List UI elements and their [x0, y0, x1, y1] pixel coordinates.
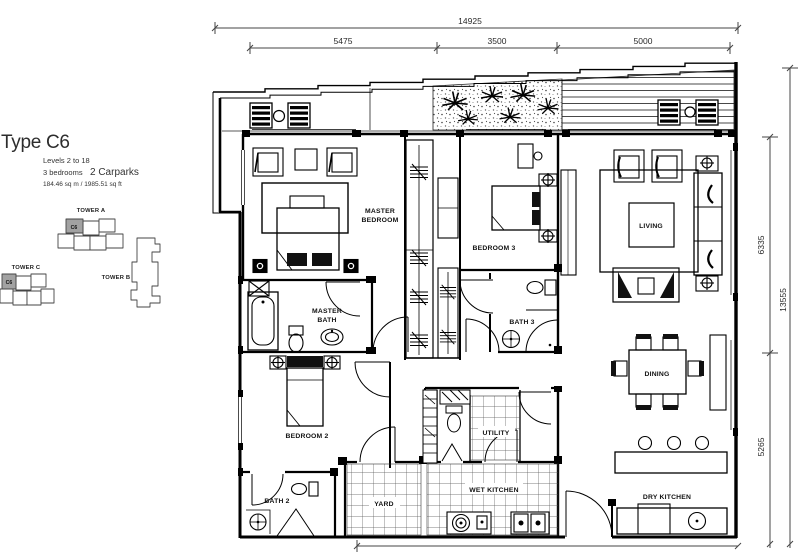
- sink: [246, 510, 270, 534]
- tower-a-label: TOWER A: [77, 208, 106, 214]
- unit-levels: Levels 2 to 18: [43, 156, 90, 165]
- dresser: [518, 144, 533, 168]
- headboard: [287, 356, 323, 367]
- dimension-bottom: [354, 540, 741, 552]
- dining-chair: [688, 361, 704, 376]
- pillow: [312, 253, 332, 266]
- wardrobes: [406, 140, 458, 358]
- bath3-shower-door: [526, 310, 558, 351]
- toilet: [292, 482, 319, 496]
- dim-top-seg1: 5475: [334, 36, 353, 46]
- dim-right-seg2: 5265: [756, 437, 766, 456]
- room-label-master-bath-2: BATH: [317, 317, 336, 324]
- sink: [689, 513, 706, 530]
- wc-bifold-door: [442, 444, 462, 461]
- bar-stool: [668, 437, 681, 450]
- armchair: [614, 150, 644, 182]
- room-label-bath3: BATH 3: [509, 319, 534, 326]
- dining-chair: [663, 334, 678, 350]
- stove-counter: [511, 512, 549, 534]
- ac-fan-icon: [274, 111, 285, 122]
- wc-toilet: [446, 406, 462, 432]
- dry-kitchen-furniture: [615, 437, 727, 535]
- unit-area: 184.46 sq m / 1985.51 sq ft: [43, 181, 122, 188]
- toilet: [289, 326, 303, 352]
- bedroom2-door: [355, 362, 390, 397]
- room-label-master-bedroom-2: BEDROOM: [362, 217, 399, 224]
- bathtub-basin: [252, 297, 274, 345]
- bath2-shower-door: [277, 509, 314, 536]
- dim-top-overall: 14925: [458, 16, 482, 26]
- floorplan-drawing: Type C6 Levels 2 to 18 3 bedrooms 2 Carp…: [0, 0, 800, 552]
- tower-c-unit-c6-label: C6: [6, 280, 13, 286]
- bath3-door: [460, 280, 493, 313]
- tv-console: [613, 268, 679, 302]
- room-label-bedroom2: BEDROOM 2: [286, 433, 329, 440]
- bedroom2-furniture: [270, 356, 340, 427]
- bedside-lamp-icon: [325, 356, 339, 370]
- room-label-yard: YARD: [374, 501, 393, 508]
- armchair: [327, 148, 357, 176]
- room-label-dry-kitchen: DRY KITCHEN: [643, 494, 691, 501]
- bedside-lamp-icon: [541, 229, 555, 243]
- dimension-top: [212, 22, 741, 54]
- dining-chair: [663, 394, 678, 410]
- pillow: [532, 192, 540, 207]
- dining-chair: [636, 334, 651, 350]
- master-suite-door: [373, 317, 408, 352]
- sink: [321, 329, 343, 345]
- side-table: [295, 149, 317, 170]
- room-label-wet-kitchen: WET KITCHEN: [469, 487, 518, 494]
- room-label-bath2: BATH 2: [264, 498, 289, 505]
- bedroom3-door: [466, 319, 499, 352]
- lamp-icon: [700, 156, 714, 170]
- unit-carparks: 2 Carparks: [90, 167, 139, 178]
- ac-ledge-left: [250, 103, 310, 128]
- room-label-living: LIVING: [639, 223, 663, 230]
- floorplan-page: Type C6 Levels 2 to 18 3 bedrooms 2 Carp…: [0, 0, 800, 552]
- island-counter: [615, 452, 727, 473]
- room-label-master-bedroom-1: MASTER: [365, 208, 395, 215]
- dim-top-seg2: 3500: [488, 36, 507, 46]
- tower-a-unit-c6-label: C6: [71, 225, 78, 231]
- unit-type-title: Type C6: [1, 132, 70, 153]
- dining-chair: [636, 394, 651, 410]
- room-label-utility: UTILITY: [482, 430, 509, 437]
- room-label-master-bath-1: MASTER: [312, 308, 342, 315]
- armchair: [253, 148, 283, 176]
- bedroom3-furniture: [492, 144, 557, 243]
- armchair: [652, 150, 682, 182]
- sink: [503, 331, 520, 348]
- tower-c-label: TOWER C: [12, 265, 41, 271]
- bedside-lamp-icon: [344, 260, 358, 273]
- tower-b-label: TOWER B: [102, 275, 131, 281]
- bedside-lamp-icon: [541, 173, 555, 187]
- tower-b-footprint: [131, 238, 160, 307]
- dim-right-seg1: 6335: [756, 235, 766, 254]
- bar-stool: [639, 437, 652, 450]
- tower-a-footprint: [58, 219, 123, 250]
- bed-bench: [290, 196, 324, 208]
- dim-top-seg3: 5000: [634, 36, 653, 46]
- key-plan: TOWER A C6 TOWER C C6 TOWER B: [0, 208, 160, 307]
- ac-fan-icon: [685, 107, 695, 117]
- cabinet: [710, 335, 726, 410]
- room-label-bedroom3: BEDROOM 3: [473, 245, 516, 252]
- room-label-dining: DINING: [645, 371, 670, 378]
- stool: [534, 152, 542, 160]
- kitchen-counter: [617, 508, 727, 534]
- entry-door: [566, 491, 612, 537]
- sideboard: [561, 170, 576, 275]
- tower-c-footprint: [0, 274, 54, 305]
- master-bedroom-furniture: [253, 148, 358, 273]
- toilet: [527, 280, 556, 295]
- balcony-strip: [222, 70, 736, 131]
- louver-window: [423, 390, 437, 463]
- pillow: [532, 210, 540, 225]
- dining-chair: [611, 361, 627, 376]
- pillow: [287, 253, 307, 266]
- lamp-icon: [700, 276, 714, 290]
- unit-bedrooms: 3 bedrooms: [43, 168, 83, 177]
- bar-stool: [696, 437, 709, 450]
- bedside-lamp-icon: [271, 356, 285, 370]
- rug: [600, 170, 698, 272]
- utility-fixtures: [440, 390, 470, 432]
- dim-right-overall: 13555: [778, 288, 788, 312]
- title-block: Type C6 Levels 2 to 18 3 bedrooms 2 Carp…: [1, 132, 139, 188]
- bedside-lamp-icon: [253, 260, 267, 273]
- store-door: [519, 392, 551, 424]
